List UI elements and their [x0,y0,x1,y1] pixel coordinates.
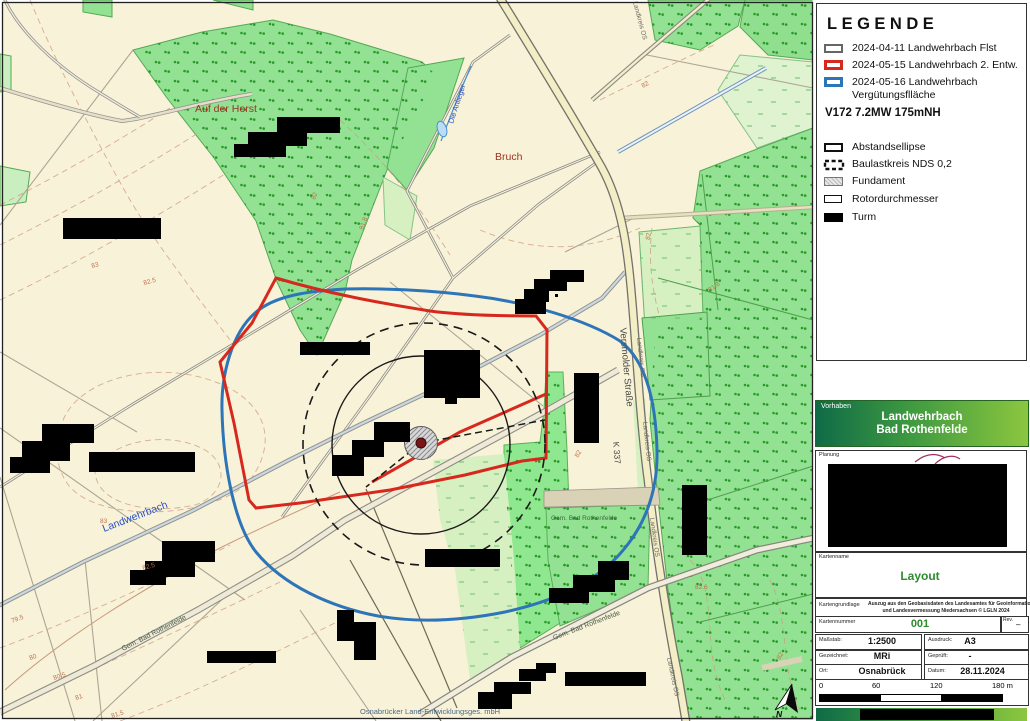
svg-text:83: 83 [100,518,108,525]
svg-text:Bruch: Bruch [495,151,523,163]
svg-text:Osnabrücker Land-Entwicklungsg: Osnabrücker Land-Entwicklungsges. mbH [360,707,500,716]
svg-text:82.6: 82.6 [695,584,708,591]
svg-text:82: 82 [645,232,653,240]
svg-text:K 337: K 337 [611,441,623,464]
svg-text:N: N [776,709,783,719]
svg-text:Auf der Horst: Auf der Horst [195,103,257,115]
svg-text:Gem. Bad Rothenfelde: Gem. Bad Rothenfelde [551,515,618,522]
